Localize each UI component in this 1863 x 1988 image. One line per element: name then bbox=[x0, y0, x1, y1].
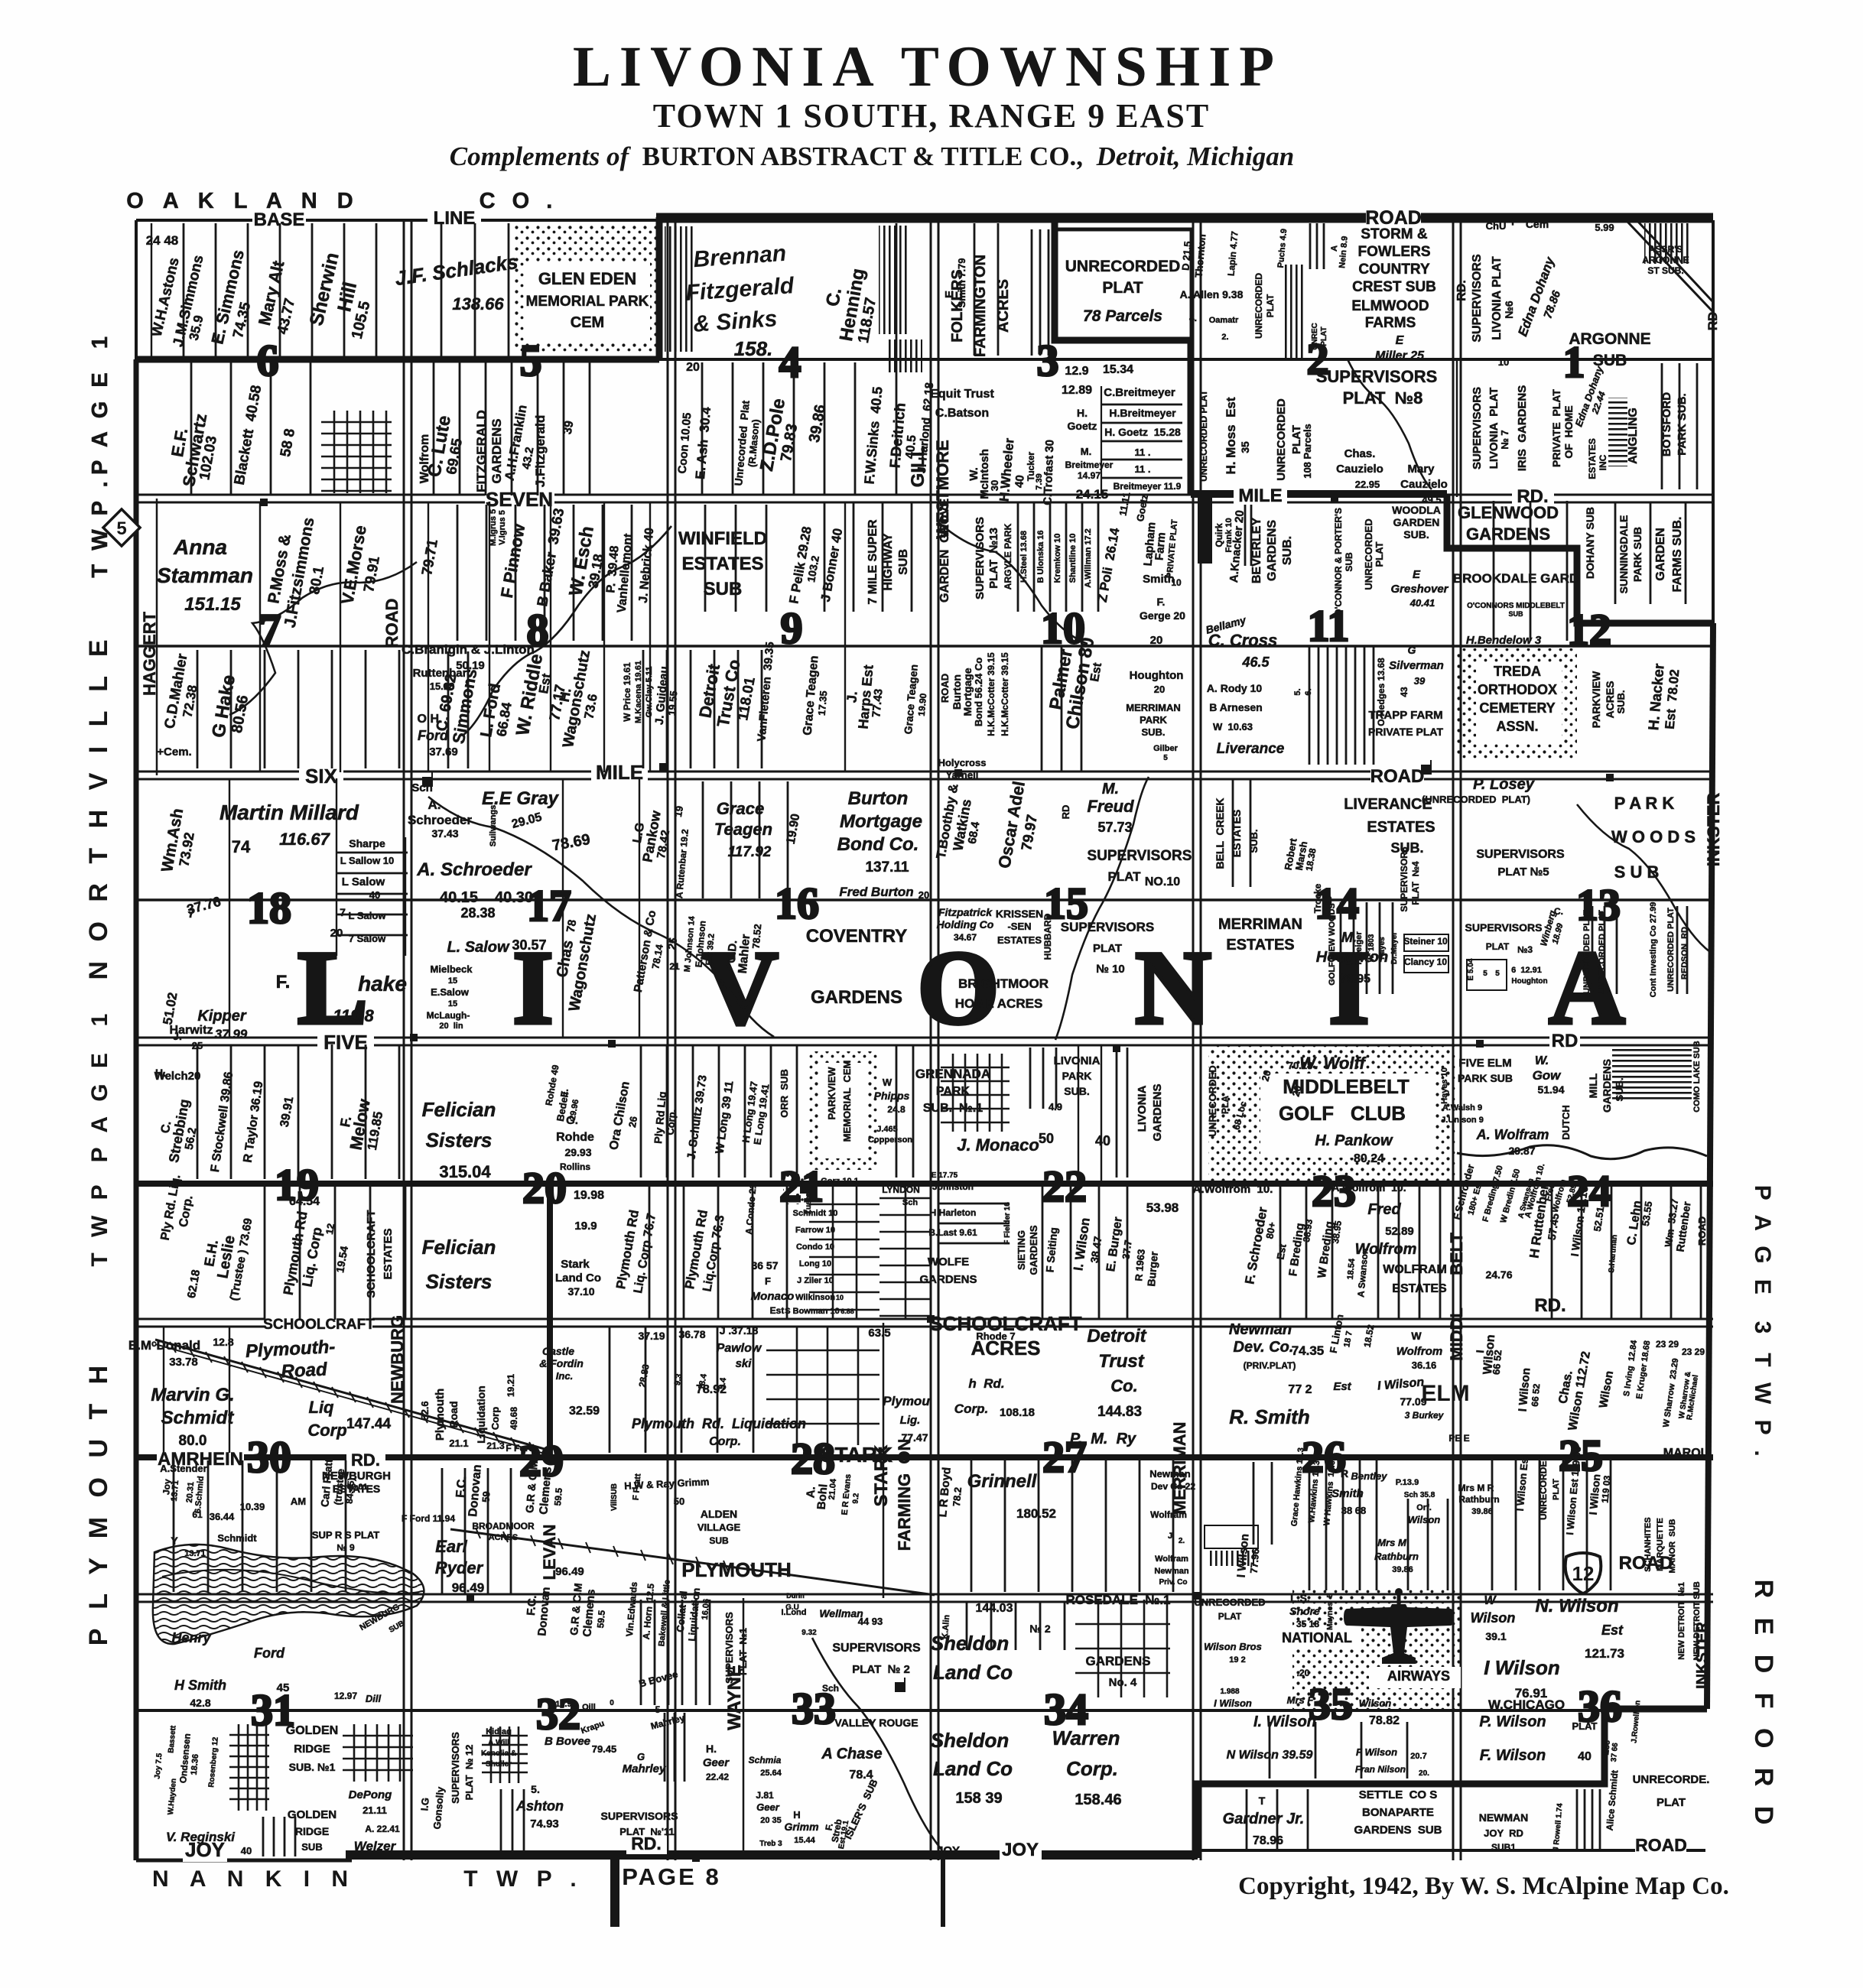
svg-text:J: J bbox=[1168, 1532, 1172, 1541]
svg-text:Breitmeyer 11.9: Breitmeyer 11.9 bbox=[1114, 481, 1182, 492]
svg-text:S Bowman 10: S Bowman 10 bbox=[785, 1307, 840, 1316]
svg-text:51.94: 51.94 bbox=[1537, 1083, 1564, 1096]
svg-text:40: 40 bbox=[1095, 1133, 1110, 1148]
svg-text:10.39: 10.39 bbox=[240, 1501, 265, 1512]
svg-text:COUNTRY: COUNTRY bbox=[1358, 261, 1430, 278]
svg-text:24 48: 24 48 bbox=[146, 233, 179, 248]
svg-text:21.1: 21.1 bbox=[449, 1437, 468, 1449]
svg-text:Geer: Geer bbox=[703, 1756, 730, 1769]
svg-text:37.10: 37.10 bbox=[567, 1285, 594, 1298]
svg-text:96.49: 96.49 bbox=[555, 1565, 584, 1578]
svg-text:O A K L A N D: O A K L A N D bbox=[126, 189, 360, 213]
svg-text:-SEN: -SEN bbox=[1007, 921, 1031, 932]
svg-text:66 52: 66 52 bbox=[1491, 1350, 1504, 1376]
svg-text:ESTATES: ESTATES bbox=[681, 554, 763, 574]
svg-text:H: H bbox=[793, 1809, 800, 1821]
svg-text:11 .: 11 . bbox=[1135, 463, 1151, 475]
svg-text:F.: F. bbox=[1157, 596, 1166, 608]
svg-text:N O R T H V I L L E: N O R T H V I L L E bbox=[84, 633, 113, 979]
svg-text:Condo 10: Condo 10 bbox=[796, 1242, 834, 1252]
svg-text:AM: AM bbox=[291, 1496, 306, 1507]
svg-text:36.78: 36.78 bbox=[678, 1328, 705, 1340]
svg-text:Kipper: Kipper bbox=[197, 1008, 247, 1025]
svg-text:C.: C. bbox=[1554, 906, 1563, 917]
svg-text:28.38: 28.38 bbox=[460, 905, 495, 921]
svg-text:E: E bbox=[943, 291, 956, 298]
svg-text:T: T bbox=[1259, 1795, 1266, 1807]
svg-text:Kremkow 10: Kremkow 10 bbox=[1053, 534, 1062, 583]
svg-text:P A G E 3: P A G E 3 bbox=[1750, 1185, 1775, 1339]
svg-text:ROAD: ROAD bbox=[1635, 1835, 1687, 1855]
svg-text:21.04: 21.04 bbox=[827, 1478, 838, 1500]
svg-text:77.43: 77.43 bbox=[870, 688, 885, 718]
svg-text:ESTATES: ESTATES bbox=[333, 1483, 381, 1495]
svg-text:12.8: 12.8 bbox=[213, 1336, 233, 1348]
svg-text:1.988: 1.988 bbox=[1220, 1688, 1239, 1696]
svg-text:SUB.: SUB. bbox=[1614, 1077, 1625, 1101]
svg-text:Rathburn: Rathburn bbox=[1374, 1551, 1419, 1562]
svg-text:SEVEN: SEVEN bbox=[486, 488, 553, 511]
svg-text:59: 59 bbox=[480, 1491, 492, 1503]
svg-text:121.73: 121.73 bbox=[1585, 1646, 1624, 1661]
svg-text:Long 10: Long 10 bbox=[799, 1259, 831, 1268]
svg-text:H Smith: H Smith bbox=[174, 1678, 226, 1693]
svg-text:Mrs M R: Mrs M R bbox=[1458, 1483, 1494, 1493]
svg-text:SUPERVISORS: SUPERVISORS bbox=[450, 1732, 461, 1804]
svg-text:45: 45 bbox=[277, 1681, 290, 1694]
svg-text:10: 10 bbox=[1171, 577, 1182, 588]
svg-text:20.: 20. bbox=[1419, 1769, 1429, 1778]
svg-text:Burton: Burton bbox=[848, 788, 909, 809]
svg-text:Equit Trust: Equit Trust bbox=[930, 388, 994, 401]
svg-text:PARK SUB: PARK SUB bbox=[1458, 1072, 1513, 1084]
svg-text:UNRECORDED: UNRECORDED bbox=[1363, 518, 1374, 590]
svg-text:PLAT № 2: PLAT № 2 bbox=[852, 1663, 910, 1676]
svg-text:UNRECORDED: UNRECORDED bbox=[1194, 1597, 1265, 1608]
svg-text:4: 4 bbox=[779, 337, 801, 387]
svg-text:19.21: 19.21 bbox=[506, 1374, 516, 1397]
svg-text:PARKVIEW: PARKVIEW bbox=[1590, 671, 1602, 728]
svg-text:116.67: 116.67 bbox=[279, 830, 330, 849]
svg-text:Rollins: Rollins bbox=[560, 1161, 590, 1172]
svg-text:Shantline 10: Shantline 10 bbox=[1068, 534, 1078, 583]
svg-text:ESTATES: ESTATES bbox=[1226, 937, 1294, 953]
svg-text:Pawlow: Pawlow bbox=[717, 1342, 762, 1355]
svg-text:ChU: ChU bbox=[1486, 220, 1507, 232]
svg-text:COVENTRY: COVENTRY bbox=[806, 926, 907, 947]
svg-text:Wolfram: Wolfram bbox=[1150, 1509, 1187, 1520]
svg-text:I.G: I.G bbox=[418, 1797, 431, 1811]
svg-text:MERRIMAN: MERRIMAN bbox=[1126, 702, 1181, 713]
svg-text:Rohde: Rohde bbox=[556, 1131, 594, 1144]
svg-text:NEW DETROIT SUB: NEW DETROIT SUB bbox=[1692, 1581, 1702, 1660]
svg-text:19.90: 19.90 bbox=[916, 693, 929, 716]
svg-text:SUPERVISORS: SUPERVISORS bbox=[1061, 920, 1155, 934]
svg-text:Shore: Shore bbox=[1289, 1605, 1320, 1617]
svg-text:FIVE ELM: FIVE ELM bbox=[1458, 1057, 1511, 1070]
svg-text:6: 6 bbox=[257, 336, 279, 385]
svg-text:O'CONNOR & PORTER'S: O'CONNOR & PORTER'S bbox=[1333, 508, 1344, 616]
svg-text:ORR SUB: ORR SUB bbox=[779, 1069, 790, 1118]
svg-text:59.5: 59.5 bbox=[595, 1610, 607, 1629]
svg-text:PLAT: PLAT bbox=[1572, 1720, 1598, 1732]
svg-text:No. 4: No. 4 bbox=[1109, 1676, 1137, 1689]
svg-text:T W P .: T W P . bbox=[463, 1866, 582, 1892]
svg-text:50: 50 bbox=[1039, 1131, 1054, 1146]
svg-text:ANGLING: ANGLING bbox=[1627, 408, 1640, 464]
svg-text:ROAD: ROAD bbox=[1370, 766, 1425, 787]
svg-text:A: A bbox=[1330, 245, 1340, 252]
svg-text:P A G E 1: P A G E 1 bbox=[88, 333, 112, 475]
svg-text:GARDENS SUB: GARDENS SUB bbox=[1354, 1824, 1442, 1837]
svg-text:BRIGHTMOOR: BRIGHTMOOR bbox=[958, 976, 1049, 991]
svg-text:NEWBURG: NEWBURG bbox=[388, 1315, 407, 1404]
svg-text:37.99: 37.99 bbox=[215, 1027, 248, 1041]
svg-text:13.71: 13.71 bbox=[170, 1480, 180, 1502]
svg-text:NEWMAN: NEWMAN bbox=[1479, 1811, 1529, 1824]
svg-text:Corp.: Corp. bbox=[709, 1435, 741, 1448]
svg-text:Bentley: Bentley bbox=[1351, 1470, 1388, 1482]
svg-text:RD.: RD. bbox=[1455, 280, 1468, 301]
svg-text:43: 43 bbox=[1399, 687, 1409, 697]
svg-text:UNRECORDE.: UNRECORDE. bbox=[1633, 1773, 1710, 1786]
svg-text:Corp.: Corp. bbox=[954, 1402, 988, 1416]
svg-text:L Salow: L Salow bbox=[349, 910, 387, 921]
svg-text:Wilkinson: Wilkinson bbox=[795, 1293, 835, 1302]
svg-text:5.: 5. bbox=[1293, 688, 1302, 695]
svg-text:Gw.Clay 5.11: Gw.Clay 5.11 bbox=[645, 667, 654, 718]
svg-text:Stamman: Stamman bbox=[157, 564, 253, 587]
svg-text:Cem: Cem bbox=[1526, 218, 1549, 230]
svg-text:I. Wilson: I. Wilson bbox=[1253, 1714, 1316, 1730]
svg-text:77.47: 77.47 bbox=[901, 1431, 928, 1444]
svg-text:Phipps: Phipps bbox=[874, 1090, 910, 1102]
svg-text:158.: 158. bbox=[734, 337, 773, 360]
svg-text:Complements of BURTON ABSTRAC: Complements of BURTON ABSTRACT & TITLE C… bbox=[450, 141, 1294, 171]
svg-text:SUPERVISORS: SUPERVISORS bbox=[1471, 387, 1484, 469]
svg-text:Mielbeck: Mielbeck bbox=[431, 963, 473, 975]
svg-text:74.35: 74.35 bbox=[1292, 1343, 1325, 1358]
svg-text:F. Wilson: F. Wilson bbox=[1480, 1747, 1546, 1764]
svg-text:R. Smith: R. Smith bbox=[1229, 1405, 1309, 1428]
svg-text:PLAT: PLAT bbox=[1374, 541, 1385, 567]
svg-text:158 39: 158 39 bbox=[955, 1790, 1002, 1807]
svg-text:HAGGERT: HAGGERT bbox=[140, 611, 159, 696]
svg-text:Shuller: Shuller bbox=[486, 1760, 512, 1769]
svg-text:Newman: Newman bbox=[1229, 1321, 1292, 1338]
svg-text:53.98: 53.98 bbox=[1146, 1200, 1179, 1215]
svg-text:R E D F O R D: R E D F O R D bbox=[1749, 1580, 1778, 1831]
svg-text:138.66: 138.66 bbox=[452, 294, 504, 313]
svg-text:Detroit: Detroit bbox=[1087, 1326, 1146, 1346]
svg-text:12.9: 12.9 bbox=[1065, 365, 1088, 378]
svg-text:COMO LAKE SUB: COMO LAKE SUB bbox=[1692, 1041, 1702, 1113]
svg-text:WINFIELD: WINFIELD bbox=[678, 528, 767, 549]
svg-text:MIDDLEBELT: MIDDLEBELT bbox=[1283, 1075, 1409, 1098]
svg-text:9.2: 9.2 bbox=[851, 1493, 860, 1504]
svg-text:11 .: 11 . bbox=[1135, 447, 1151, 458]
svg-text:Corp: Corp bbox=[307, 1421, 346, 1440]
svg-text:SUB1: SUB1 bbox=[1491, 1842, 1516, 1853]
svg-text:21.11: 21.11 bbox=[363, 1804, 387, 1816]
svg-text:ACRES: ACRES bbox=[1604, 681, 1616, 718]
svg-text:G.U: G.U bbox=[785, 1603, 799, 1612]
svg-text:E 17.75: E 17.75 bbox=[931, 1171, 958, 1180]
svg-text:PRIVATE PLAT: PRIVATE PLAT bbox=[1368, 726, 1443, 738]
svg-text:Wilson: Wilson bbox=[1359, 1697, 1392, 1709]
svg-text:Sch 35.8: Sch 35.8 bbox=[1404, 1491, 1435, 1499]
svg-text:PARK: PARK bbox=[1140, 714, 1167, 726]
svg-text:144.03: 144.03 bbox=[976, 1602, 1013, 1615]
svg-text:H.: H. bbox=[1077, 407, 1088, 419]
svg-text:A. Rody 10: A. Rody 10 bbox=[1207, 682, 1263, 694]
svg-text:78: 78 bbox=[564, 919, 580, 934]
svg-text:H.: H. bbox=[706, 1743, 717, 1755]
svg-text:5.99: 5.99 bbox=[1595, 222, 1614, 233]
svg-text:40: 40 bbox=[1013, 475, 1026, 489]
svg-text:W O O D S: W O O D S bbox=[1611, 827, 1696, 846]
svg-text:LYNDON: LYNDON bbox=[882, 1184, 920, 1195]
svg-text:78.52: 78.52 bbox=[750, 924, 764, 950]
svg-text:SUPERVISORS: SUPERVISORS bbox=[1476, 848, 1565, 861]
svg-text:E.Salow: E.Salow bbox=[431, 986, 470, 998]
svg-text:LIVONIA: LIVONIA bbox=[1136, 1085, 1149, 1132]
svg-text:12.97: 12.97 bbox=[334, 1691, 357, 1701]
svg-text:Liq: Liq bbox=[309, 1398, 335, 1417]
svg-text:PLAT: PLAT bbox=[1265, 294, 1276, 317]
svg-text:PLAT: PLAT bbox=[1657, 1796, 1686, 1809]
svg-text:W: W bbox=[1484, 1594, 1497, 1607]
svg-text:Treb 3: Treb 3 bbox=[759, 1840, 782, 1848]
svg-text:+Cem.: +Cem. bbox=[157, 745, 191, 758]
svg-text:PARK: PARK bbox=[1062, 1070, 1092, 1082]
svg-text:Trocke: Trocke bbox=[1312, 883, 1323, 913]
svg-text:49.68: 49.68 bbox=[509, 1407, 519, 1430]
svg-text:STORM &: STORM & bbox=[1361, 226, 1428, 242]
svg-text:PLAT: PLAT bbox=[1093, 942, 1122, 955]
svg-text:L Sallow 10: L Sallow 10 bbox=[340, 855, 395, 866]
svg-text:SUPERVISORS: SUPERVISORS bbox=[832, 1642, 921, 1655]
svg-text:26: 26 bbox=[626, 1116, 639, 1129]
svg-text:37 66: 37 66 bbox=[1610, 1742, 1620, 1762]
svg-text:L Salow: L Salow bbox=[342, 875, 385, 888]
svg-text:Cauzielo: Cauzielo bbox=[1336, 463, 1383, 476]
svg-text:BEVERLEY: BEVERLEY bbox=[1250, 518, 1263, 584]
svg-text:24.76: 24.76 bbox=[1485, 1268, 1512, 1281]
svg-text:74.93: 74.93 bbox=[530, 1817, 559, 1830]
svg-text:TREDA: TREDA bbox=[1494, 664, 1541, 679]
svg-text:E 5.04: E 5.04 bbox=[1467, 958, 1475, 980]
svg-text:PLAT: PLAT bbox=[1552, 1479, 1561, 1500]
svg-text:SUB. №1: SUB. №1 bbox=[289, 1761, 336, 1773]
svg-text:SUB: SUB bbox=[301, 1841, 322, 1853]
svg-text:151.15: 151.15 bbox=[184, 594, 241, 615]
svg-text:TRAPP FARM: TRAPP FARM bbox=[1368, 709, 1442, 722]
svg-text:GARDENS: GARDENS bbox=[1601, 1059, 1613, 1113]
svg-text:Lig.: Lig. bbox=[900, 1414, 921, 1427]
svg-text:WOODLA: WOODLA bbox=[1392, 504, 1441, 516]
svg-text:Harwitz: Harwitz bbox=[170, 1024, 213, 1037]
svg-text:HIGHWAY: HIGHWAY bbox=[882, 533, 895, 590]
svg-text:AIRWAYS: AIRWAYS bbox=[1387, 1668, 1450, 1684]
svg-text:Breitmeyer: Breitmeyer bbox=[1065, 460, 1114, 470]
svg-text:38 68: 38 68 bbox=[1341, 1505, 1367, 1516]
svg-text:Land Co: Land Co bbox=[933, 1757, 1013, 1780]
svg-text:RIDGE: RIDGE bbox=[295, 1825, 329, 1837]
svg-text:57.73: 57.73 bbox=[1097, 820, 1132, 835]
svg-text:39.86: 39.86 bbox=[1471, 1507, 1493, 1516]
svg-text:M.Kacena 19.61: M.Kacena 19.61 bbox=[634, 661, 643, 723]
svg-text:PLAT № 12: PLAT № 12 bbox=[463, 1745, 475, 1801]
svg-text:Chas.: Chas. bbox=[1344, 447, 1376, 460]
svg-text:6.88: 6.88 bbox=[840, 1307, 854, 1315]
svg-text:J.81: J.81 bbox=[756, 1790, 774, 1801]
svg-text:Mrs M: Mrs M bbox=[1377, 1537, 1407, 1548]
svg-text:P. Wilson: P. Wilson bbox=[1479, 1714, 1546, 1730]
svg-text:MANOR SUB: MANOR SUB bbox=[1668, 1519, 1677, 1574]
svg-text:hake: hake bbox=[358, 972, 407, 996]
svg-text:BONAPARTE: BONAPARTE bbox=[1362, 1806, 1434, 1819]
svg-text:W 10.63: W 10.63 bbox=[1213, 721, 1253, 733]
svg-text:F.: F. bbox=[276, 972, 291, 992]
svg-text:GOLF VIEW WOODS: GOLF VIEW WOODS bbox=[1328, 903, 1337, 986]
svg-text:Welch20: Welch20 bbox=[154, 1070, 201, 1083]
svg-text:Grinnell: Grinnell bbox=[967, 1471, 1038, 1492]
svg-text:SUB: SUB bbox=[709, 1535, 729, 1546]
svg-text:PLAT №8: PLAT №8 bbox=[1343, 388, 1423, 408]
svg-text:80.0: 80.0 bbox=[179, 1433, 207, 1449]
svg-text:MEMORIAL PARK: MEMORIAL PARK bbox=[526, 294, 649, 310]
svg-text:W: W bbox=[1411, 1330, 1422, 1342]
svg-text:SETTLE CO S: SETTLE CO S bbox=[1359, 1788, 1438, 1801]
svg-text:50.19: 50.19 bbox=[456, 659, 485, 672]
svg-text:2.: 2. bbox=[1221, 333, 1228, 342]
svg-text:Smith: Smith bbox=[1331, 1487, 1364, 1500]
svg-text:44 93: 44 93 bbox=[858, 1616, 883, 1627]
svg-text:10: 10 bbox=[836, 1294, 844, 1301]
svg-text:W. 1803: W. 1803 bbox=[1367, 934, 1376, 962]
svg-text:LIVONIA: LIVONIA bbox=[1054, 1054, 1101, 1067]
svg-text:+: + bbox=[1509, 214, 1517, 229]
svg-text:36 57: 36 57 bbox=[751, 1259, 778, 1272]
svg-text:PAGE 8: PAGE 8 bbox=[622, 1863, 720, 1890]
svg-text:B Arnesen: B Arnesen bbox=[1209, 701, 1263, 713]
svg-text:.20: .20 bbox=[1297, 1668, 1310, 1678]
svg-text:Rhode 7: Rhode 7 bbox=[976, 1330, 1015, 1342]
svg-text:15: 15 bbox=[448, 999, 457, 1009]
svg-text:Greshover: Greshover bbox=[1390, 583, 1448, 596]
svg-text:UNRECORDED PLAT: UNRECORDED PLAT bbox=[1582, 910, 1592, 994]
svg-text:Durin: Durin bbox=[786, 1592, 805, 1600]
svg-text:Road: Road bbox=[281, 1359, 329, 1382]
svg-text:42.8: 42.8 bbox=[190, 1697, 210, 1709]
svg-text:I Wilson: I Wilson bbox=[1214, 1697, 1252, 1709]
svg-text:Geer: Geer bbox=[756, 1801, 780, 1813]
svg-text:M.Igrus 5: M.Igrus 5 bbox=[489, 509, 498, 546]
svg-text:Inc.: Inc. bbox=[556, 1370, 573, 1382]
svg-text:3 Burkey: 3 Burkey bbox=[1405, 1410, 1445, 1421]
svg-text:Holding Co: Holding Co bbox=[937, 918, 994, 931]
svg-text:19 2: 19 2 bbox=[1229, 1655, 1245, 1665]
svg-text:GARDENS: GARDENS bbox=[1028, 1225, 1039, 1275]
svg-text:SUPERVISORS: SUPERVISORS bbox=[1088, 848, 1192, 864]
svg-text:W Price 19.61: W Price 19.61 bbox=[622, 662, 632, 722]
svg-text:Gilber: Gilber bbox=[1153, 744, 1179, 753]
svg-text:Martin Millard: Martin Millard bbox=[219, 801, 359, 824]
svg-text:20: 20 bbox=[1154, 684, 1165, 695]
svg-text:ACRES: ACRES bbox=[995, 279, 1012, 333]
svg-text:Trust: Trust bbox=[1098, 1351, 1145, 1372]
svg-text:F.C.: F.C. bbox=[454, 1476, 469, 1499]
svg-text:A. Wolfram: A. Wolfram bbox=[1476, 1127, 1549, 1142]
svg-text:R: R bbox=[1341, 1467, 1348, 1480]
svg-text:Est: Est bbox=[1333, 1380, 1351, 1393]
svg-text:KRISSEN: KRISSEN bbox=[996, 908, 1043, 920]
svg-text:SUPERVISORS: SUPERVISORS bbox=[601, 1810, 678, 1822]
svg-text:PLAT: PLAT bbox=[1486, 941, 1510, 952]
svg-text:35 18: 35 18 bbox=[1296, 1619, 1319, 1629]
svg-text:Goetz: Goetz bbox=[1068, 420, 1097, 432]
svg-text:Ashton: Ashton bbox=[515, 1798, 564, 1814]
svg-text:№ 10: № 10 bbox=[1096, 963, 1125, 976]
svg-text:FOWLERS: FOWLERS bbox=[1358, 244, 1431, 260]
svg-text:17: 17 bbox=[527, 881, 571, 931]
svg-text:12: 12 bbox=[1572, 1562, 1595, 1585]
svg-text:GLENWOOD: GLENWOOD bbox=[1458, 503, 1559, 522]
svg-text:PLAT №4: PLAT №4 bbox=[1410, 861, 1421, 905]
svg-text:N A N K I N: N A N K I N bbox=[152, 1866, 356, 1892]
svg-text:O'CONNORS MIDDLEBELT: O'CONNORS MIDDLEBELT bbox=[1467, 602, 1565, 610]
svg-text:59.5: 59.5 bbox=[552, 1487, 564, 1506]
svg-text:23 29: 23 29 bbox=[1682, 1346, 1705, 1357]
svg-text:Welzer: Welzer bbox=[354, 1839, 397, 1853]
svg-text:DOHANY SUB: DOHANY SUB bbox=[1584, 507, 1596, 579]
svg-text:40.41: 40.41 bbox=[1409, 597, 1435, 609]
svg-text:MARQUETTE: MARQUETTE bbox=[1656, 1518, 1665, 1571]
svg-text:ROAD: ROAD bbox=[1365, 207, 1422, 229]
svg-text:C.Batson: C.Batson bbox=[935, 407, 989, 420]
svg-text:M.: M. bbox=[1081, 446, 1091, 457]
svg-text:B.Last 9.61: B.Last 9.61 bbox=[928, 1227, 977, 1238]
svg-text:17.35: 17.35 bbox=[816, 690, 830, 716]
svg-text:Gow: Gow bbox=[1533, 1068, 1562, 1083]
svg-text:A. Allen 9.38: A. Allen 9.38 bbox=[1180, 288, 1244, 300]
svg-text:SUB.: SUB. bbox=[1141, 726, 1165, 738]
svg-text:35: 35 bbox=[1239, 441, 1251, 453]
svg-text:(UNRECORDED PLAT): (UNRECORDED PLAT) bbox=[1422, 794, 1530, 805]
svg-text:NATIONAL: NATIONAL bbox=[1282, 1630, 1352, 1645]
svg-text:Copyright, 1942, By W. S. McAl: Copyright, 1942, By W. S. McAlpine Map C… bbox=[1238, 1873, 1729, 1900]
svg-text:39.1: 39.1 bbox=[1485, 1630, 1506, 1642]
svg-text:5.: 5. bbox=[531, 1783, 540, 1795]
svg-text:HUBBARD: HUBBARD bbox=[1042, 913, 1053, 960]
svg-text:78.96: 78.96 bbox=[1253, 1834, 1283, 1847]
svg-text:15.34: 15.34 bbox=[1103, 363, 1133, 376]
svg-text:Dill: Dill bbox=[366, 1693, 382, 1704]
svg-text:Fitzpatrick: Fitzpatrick bbox=[938, 906, 993, 918]
svg-text:McLaugh-: McLaugh- bbox=[427, 1010, 470, 1021]
svg-text:108.18: 108.18 bbox=[1000, 1406, 1035, 1419]
svg-text:144.83: 144.83 bbox=[1097, 1404, 1142, 1420]
svg-text:Dev. Co.: Dev. Co. bbox=[1234, 1339, 1294, 1356]
svg-text:E.E Gray: E.E Gray bbox=[482, 788, 560, 809]
svg-text:46.5: 46.5 bbox=[1241, 655, 1270, 670]
svg-text:Wolfram: Wolfram bbox=[1155, 1554, 1188, 1564]
svg-text:SUB.: SUB. bbox=[1281, 536, 1294, 565]
svg-text:ROSEDALE №.1: ROSEDALE №.1 bbox=[1065, 1593, 1170, 1607]
svg-text:Fred: Fred bbox=[1367, 1201, 1401, 1218]
svg-text:Newman: Newman bbox=[1154, 1567, 1189, 1576]
